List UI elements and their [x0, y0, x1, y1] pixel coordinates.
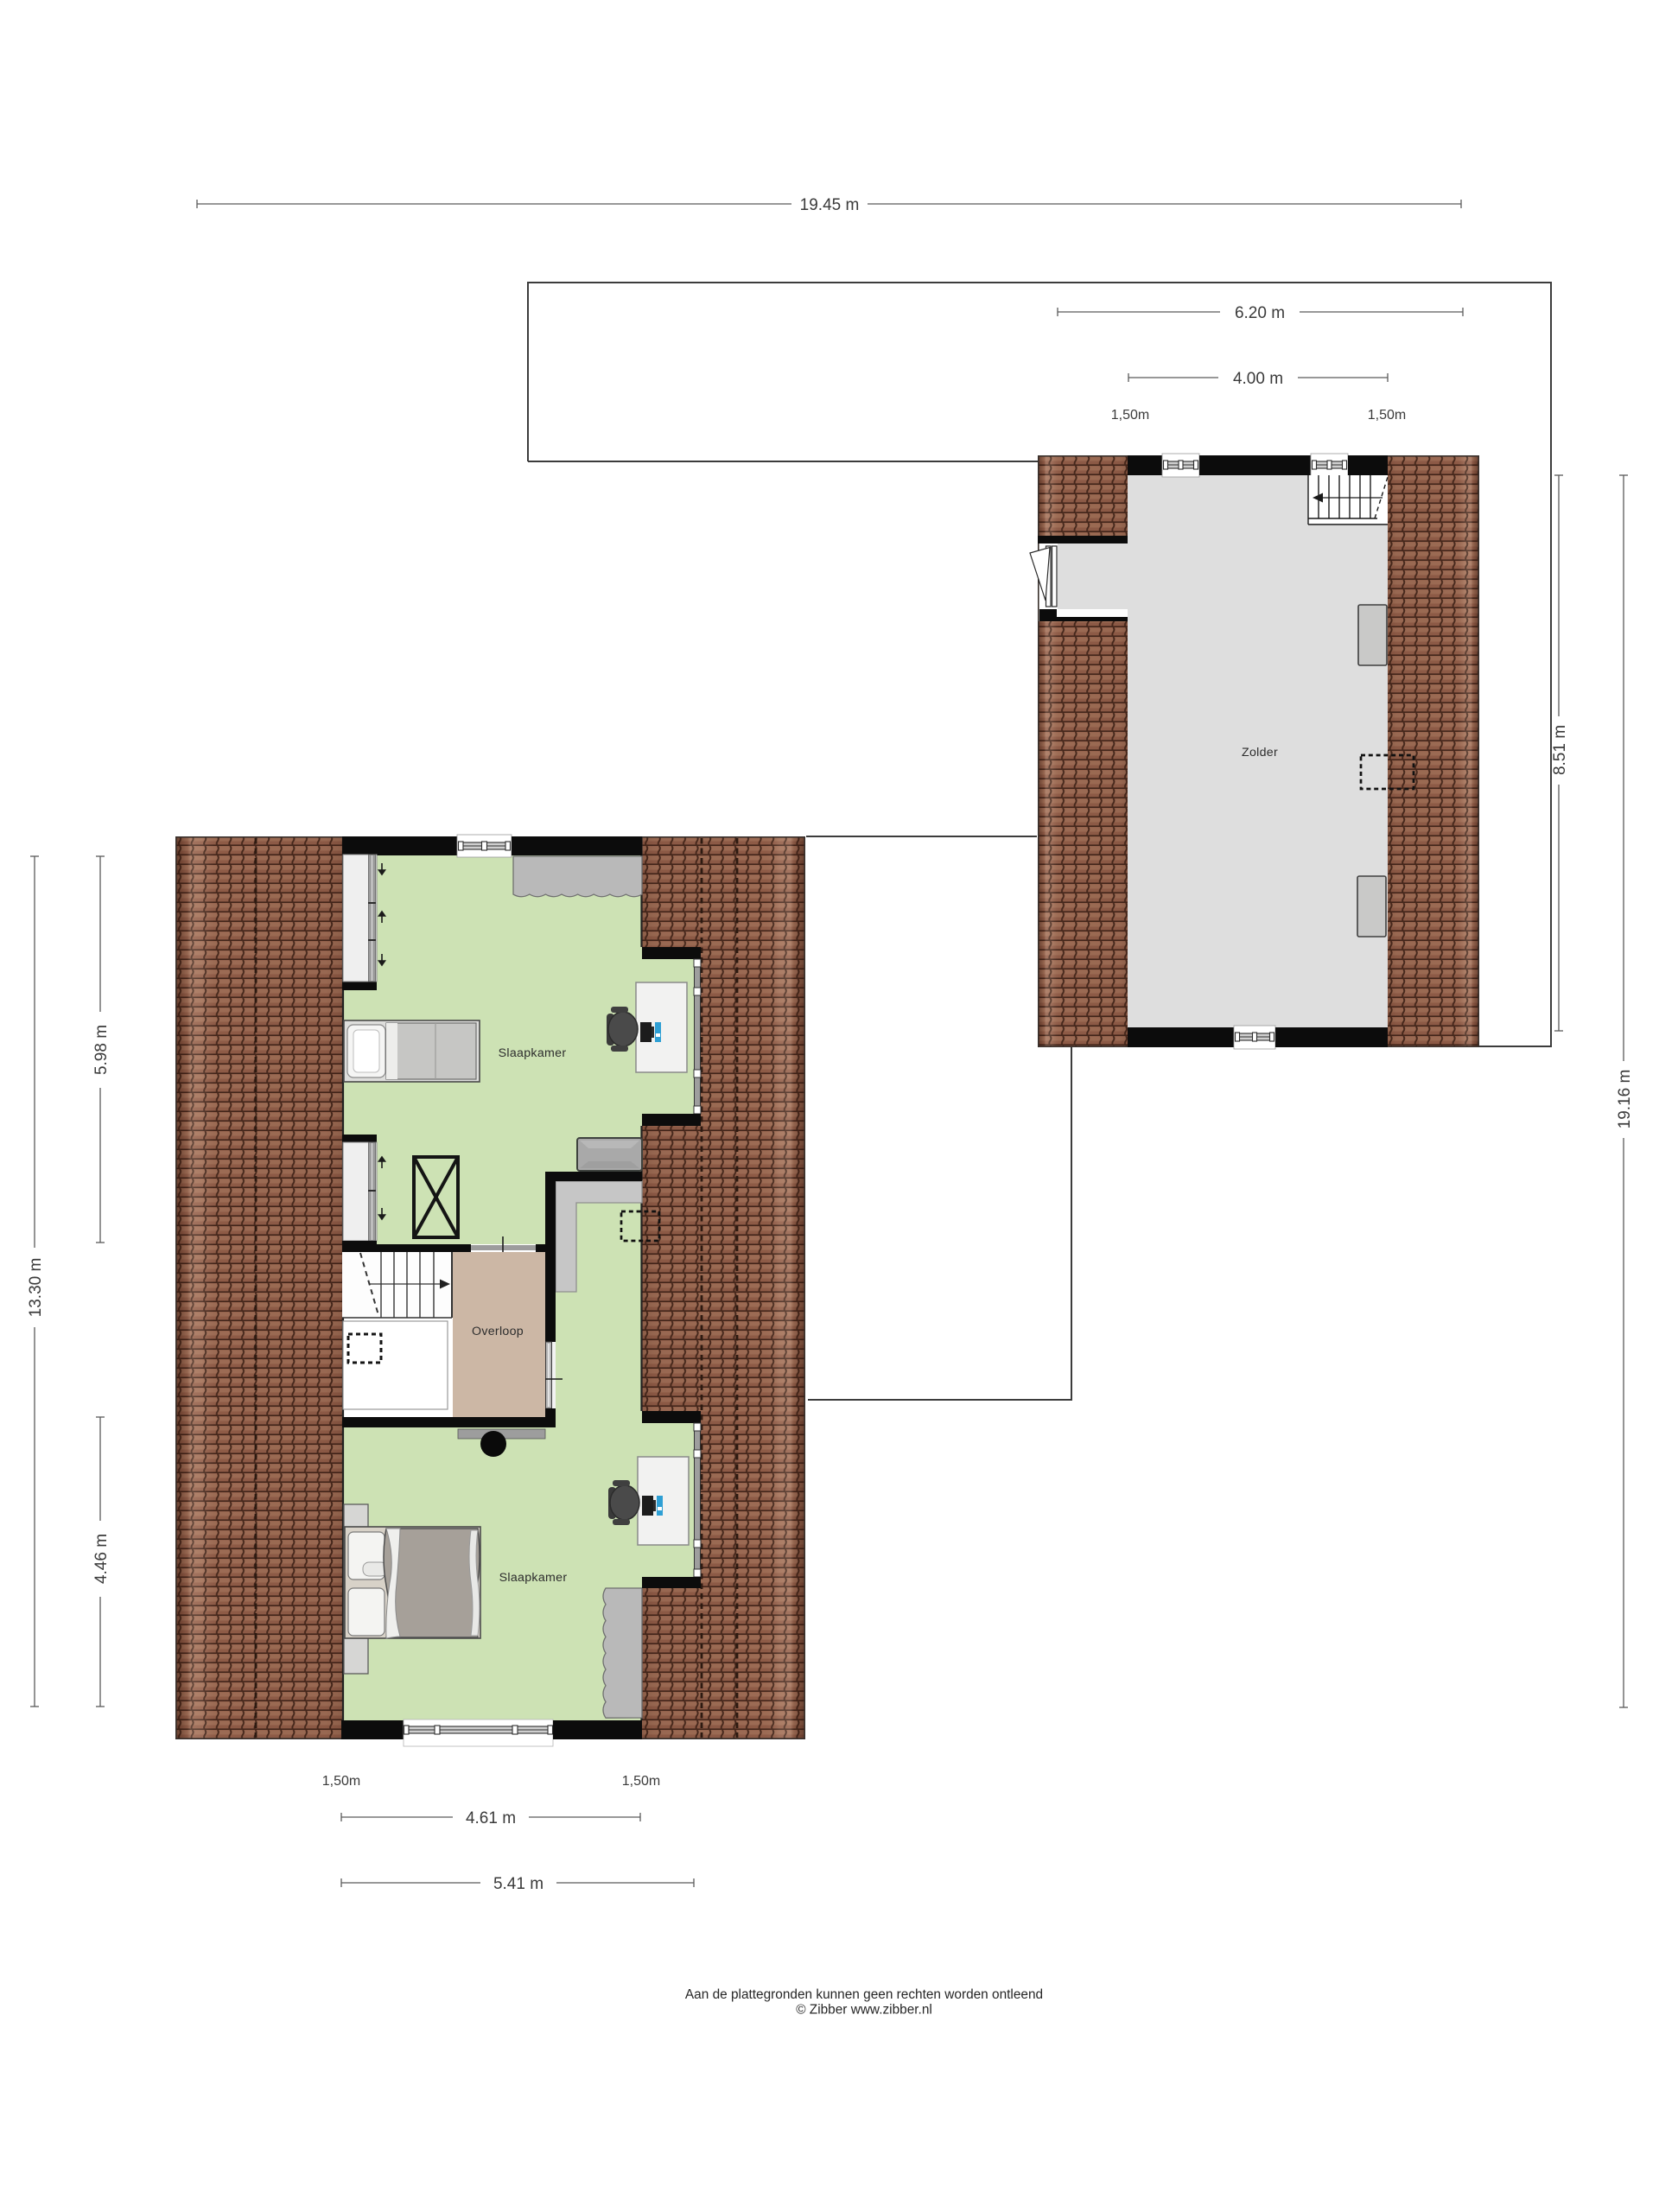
svg-text:19.45 m: 19.45 m: [800, 196, 860, 214]
svg-text:4.46 m: 4.46 m: [92, 1534, 111, 1584]
svg-text:1,50m: 1,50m: [1368, 408, 1406, 423]
svg-text:13.30 m: 13.30 m: [27, 1258, 45, 1318]
svg-text:© Zibber www.zibber.nl: © Zibber www.zibber.nl: [796, 2003, 932, 2018]
svg-text:4.00 m: 4.00 m: [1233, 370, 1283, 388]
svg-text:Slaapkamer: Slaapkamer: [499, 1571, 568, 1585]
svg-text:4.61 m: 4.61 m: [466, 1809, 516, 1827]
svg-text:8.51 m: 8.51 m: [1551, 725, 1569, 775]
svg-text:Overloop: Overloop: [472, 1325, 524, 1338]
svg-text:Slaapkamer: Slaapkamer: [499, 1046, 567, 1060]
svg-text:Aan de plattegronden kunnen ge: Aan de plattegronden kunnen geen rechten…: [685, 1987, 1043, 2002]
svg-text:6.20 m: 6.20 m: [1235, 304, 1285, 322]
svg-text:1,50m: 1,50m: [322, 1774, 360, 1789]
svg-text:1,50m: 1,50m: [622, 1774, 660, 1789]
svg-text:5.41 m: 5.41 m: [493, 1875, 543, 1893]
svg-text:Zolder: Zolder: [1242, 746, 1278, 760]
svg-text:5.98 m: 5.98 m: [92, 1025, 111, 1075]
svg-text:19.16 m: 19.16 m: [1616, 1070, 1634, 1129]
svg-text:1,50m: 1,50m: [1111, 408, 1149, 423]
